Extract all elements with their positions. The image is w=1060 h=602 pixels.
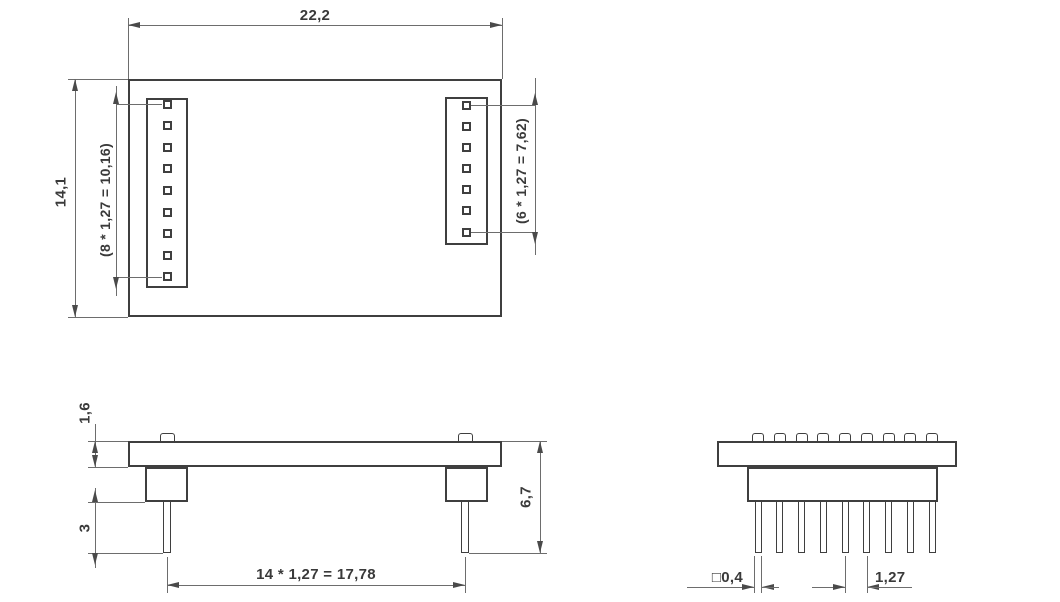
arrowhead-down xyxy=(92,455,98,467)
arrowhead-up xyxy=(72,79,78,91)
arrowhead-right xyxy=(742,584,754,590)
extension-line xyxy=(88,502,145,503)
end-view-pin xyxy=(863,502,870,553)
technical-drawing-canvas: 22,2 14,1 (8 * 1,27 = 10,16) (6 * 1,27 =… xyxy=(0,0,1060,602)
end-view-pin-top xyxy=(904,433,916,441)
pin-pad-square xyxy=(462,185,471,194)
leader-line xyxy=(116,277,162,278)
dimension-line-overall-height xyxy=(540,441,541,553)
pin-pitch-label: 1,27 xyxy=(875,569,905,586)
extension-line xyxy=(469,553,547,554)
arrowhead-up xyxy=(113,92,119,104)
dimension-line-board-height xyxy=(75,79,76,317)
arrowhead-right xyxy=(490,22,502,28)
front-view-left-connector-body xyxy=(145,467,188,502)
pin-pad-square xyxy=(163,229,172,238)
leader-line xyxy=(471,105,535,106)
pin-pad-square xyxy=(462,143,471,152)
end-view-pin xyxy=(776,502,783,553)
right-column-span-label: (6 * 1,27 = 7,62) xyxy=(513,118,529,224)
end-view-pin-top xyxy=(839,433,851,441)
board-width-label: 22,2 xyxy=(255,7,375,24)
arrowhead-down xyxy=(532,232,538,244)
pin-pad-square xyxy=(462,228,471,237)
front-view-left-pin-top xyxy=(160,433,175,441)
pin-pad-square xyxy=(163,272,172,281)
pin-cross-section-label: □0,4 xyxy=(660,569,743,586)
pin-pad-square xyxy=(163,143,172,152)
front-view-left-pin xyxy=(163,502,171,553)
dimension-line-tail xyxy=(867,587,912,588)
end-view-pin-top xyxy=(752,433,764,441)
pin-pad-square xyxy=(163,208,172,217)
board-height-label: 14,1 xyxy=(53,177,70,207)
pin-pad-square xyxy=(462,101,471,110)
end-view-pin-top xyxy=(817,433,829,441)
extension-line xyxy=(754,556,755,593)
end-view-connector-body xyxy=(747,467,938,502)
arrowhead-left xyxy=(128,22,140,28)
end-view-pin xyxy=(798,502,805,553)
arrowhead-down xyxy=(72,305,78,317)
end-view-pin-top xyxy=(774,433,786,441)
end-view-pin xyxy=(842,502,849,553)
extension-line xyxy=(465,557,466,593)
front-view-board xyxy=(128,441,502,467)
arrowhead-up xyxy=(532,93,538,105)
end-view-pin-top xyxy=(883,433,895,441)
arrowhead-right xyxy=(453,582,465,588)
end-view-board xyxy=(717,441,957,467)
overall-height-label: 6,7 xyxy=(518,486,535,508)
end-view-pin xyxy=(820,502,827,553)
end-view-pin xyxy=(907,502,914,553)
end-view-pin-top xyxy=(926,433,938,441)
end-view-pin xyxy=(885,502,892,553)
front-view-right-pin xyxy=(461,502,469,553)
pin-pad-square xyxy=(163,121,172,130)
column-spacing-label: 14 * 1,27 = 17,78 xyxy=(216,566,416,583)
front-view-right-connector-body xyxy=(445,467,488,502)
arrowhead-down xyxy=(537,541,543,553)
extension-line xyxy=(88,467,128,468)
dimension-line-tail xyxy=(762,587,779,588)
arrowhead-down xyxy=(92,553,98,565)
extension-line xyxy=(845,556,846,593)
dimension-line-left-column-span xyxy=(116,86,117,296)
extension-line xyxy=(68,317,128,318)
pin-pad-square xyxy=(462,122,471,131)
dimension-line-board-width xyxy=(128,25,502,26)
pin-pad-square xyxy=(163,164,172,173)
front-view-right-pin-top xyxy=(458,433,473,441)
pin-protrusion-label: 3 xyxy=(77,524,94,533)
pin-pad-square xyxy=(163,186,172,195)
end-view-pin-top xyxy=(796,433,808,441)
end-view-pin xyxy=(755,502,762,553)
extension-line xyxy=(88,553,163,554)
arrowhead-right xyxy=(833,584,845,590)
leader-line xyxy=(116,104,162,105)
arrowhead-left xyxy=(167,582,179,588)
arrowhead-up xyxy=(537,441,543,453)
dimension-line-column-spacing xyxy=(167,585,465,586)
pin-pad-square xyxy=(462,164,471,173)
left-column-span-label: (8 * 1,27 = 10,16) xyxy=(97,143,113,257)
pin-pad-square xyxy=(462,206,471,215)
arrowhead-down xyxy=(113,277,119,289)
pin-pad-square xyxy=(163,100,172,109)
end-view-pin-top xyxy=(861,433,873,441)
arrowhead-up xyxy=(92,441,98,453)
leader-line xyxy=(471,232,535,233)
arrowhead-up xyxy=(92,490,98,502)
pin-pad-square xyxy=(163,251,172,260)
board-thickness-label: 1,6 xyxy=(77,402,94,424)
end-view-pin xyxy=(929,502,936,553)
extension-line xyxy=(502,18,503,79)
